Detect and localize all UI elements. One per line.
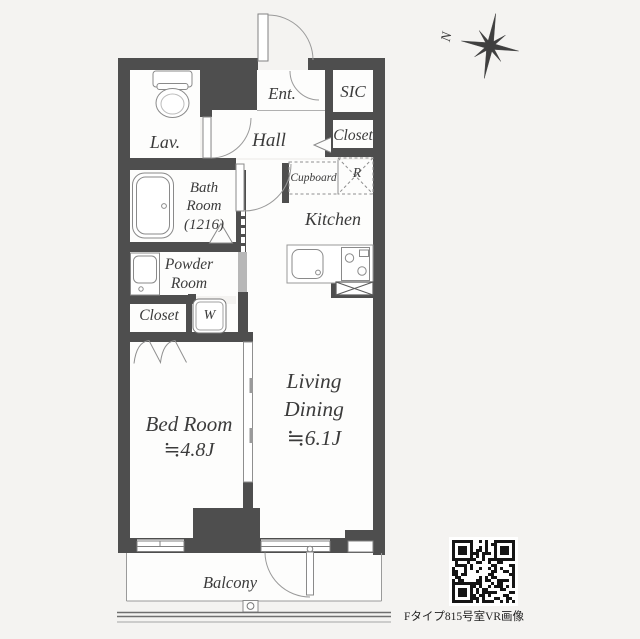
label-living-line2: Dining [269, 395, 359, 423]
label-fridge: R [347, 165, 367, 181]
kitchen-sink [292, 250, 323, 279]
bedroom-window [137, 540, 184, 553]
qr-grid [452, 540, 515, 603]
label-powder-line1: Powder [157, 256, 221, 275]
label-bath: Bath Room (1216) [174, 179, 234, 234]
label-ent: Ent. [256, 84, 308, 105]
label-living-size: ≒6.1J [269, 424, 359, 452]
stove [342, 248, 370, 281]
bedroom-closet-door [134, 341, 187, 364]
qr-code [449, 537, 518, 606]
label-cupboard: Cupboard [289, 171, 338, 185]
label-bedroom-name: Bed Room [134, 411, 244, 438]
toilet [153, 71, 192, 118]
bathtub [133, 173, 174, 238]
vanity-sink [131, 253, 160, 295]
label-washer: W [196, 307, 223, 324]
label-balcony: Balcony [197, 573, 263, 593]
label-living-line1: Living [269, 367, 359, 395]
label-kitchen: Kitchen [300, 209, 366, 231]
wall-tick-marks [241, 210, 245, 252]
kitchen-counter [287, 245, 373, 283]
label-bath-line3: (1216) [174, 216, 234, 234]
label-bedroom-size: ≒4.8J [134, 438, 244, 464]
north-compass-icon [456, 8, 525, 83]
floor-plan: Lav. Ent. SIC Closet Hall Bath Room (121… [0, 0, 640, 639]
label-bath-line2: Room [174, 197, 234, 215]
label-bath-line1: Bath [174, 179, 234, 197]
qr-caption: Fタイプ815号室VR画像 [399, 610, 529, 624]
label-closet-lower: Closet [131, 307, 187, 326]
label-living: Living Dining ≒6.1J [269, 367, 359, 452]
label-sic: SIC [331, 82, 375, 103]
balcony-door [265, 546, 314, 597]
living-window [261, 540, 330, 553]
side-window-inset [348, 541, 373, 552]
label-powder: Powder Room [157, 256, 221, 294]
label-closet-upper: Closet [327, 127, 379, 146]
plan-linework [0, 0, 640, 639]
label-lav: Lav. [133, 132, 197, 154]
label-bedroom: Bed Room ≒4.8J [134, 411, 244, 463]
hall-door [236, 164, 291, 211]
counter-end-panel [336, 282, 373, 295]
label-hall: Hall [238, 129, 300, 152]
label-powder-line2: Room [157, 275, 221, 294]
sliding-partition [244, 342, 254, 482]
